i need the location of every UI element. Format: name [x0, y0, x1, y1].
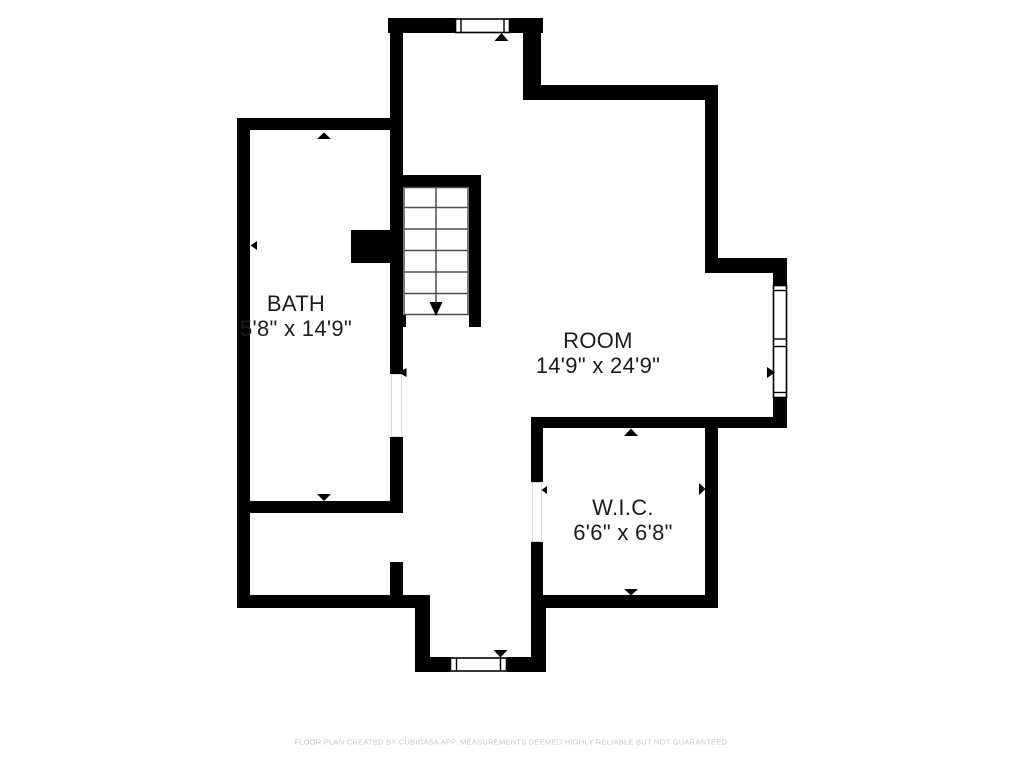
arrow-up-icon — [317, 133, 331, 140]
arrow-up-icon — [624, 429, 638, 437]
door-bath — [392, 375, 402, 437]
stairs — [404, 188, 468, 315]
wall-plumbing-stub — [351, 230, 403, 263]
door-openings — [392, 375, 542, 542]
room-dimensions: 14'9" x 24'9" — [536, 353, 661, 378]
door-wic — [533, 483, 542, 542]
floor-plan-page: BATH 5'8" x 14'9" ROOM 14'9" x 24'9" W.I… — [0, 0, 1024, 768]
wall-stairs-exit-stub — [396, 315, 406, 327]
arrow-down-icon — [317, 494, 331, 501]
walls — [237, 18, 787, 672]
wall-bath-east-lower — [390, 562, 403, 608]
room-dimensions: 6'6" x 6'8" — [573, 520, 673, 545]
disclaimer-text: FLOOR PLAN CREATED BY CUBICASA APP. MEAS… — [294, 738, 729, 747]
wall-bath-bottom — [250, 501, 403, 513]
wall-step-horizontal — [523, 85, 718, 100]
window-right — [774, 286, 787, 398]
wall-entry-bottom-left — [415, 657, 450, 672]
wall-entry-west — [415, 608, 430, 657]
room-label-bath: BATH 5'8" x 14'9" — [240, 291, 352, 341]
room-label-wic: W.I.C. 6'6" x 6'8" — [573, 495, 673, 545]
arrow-left-icon — [251, 241, 258, 250]
room-name: BATH — [240, 291, 352, 316]
arrow-down-icon — [624, 589, 638, 596]
wall-east-upper — [705, 85, 718, 273]
wall-wic-west-lower — [531, 542, 543, 608]
room-name: ROOM — [536, 328, 661, 353]
window-top — [456, 19, 510, 33]
arrow-down-icon — [494, 650, 508, 658]
wall-entry-bottom-right — [507, 657, 546, 672]
wall-bath-east-mid — [390, 437, 403, 513]
wall-west-outer — [237, 118, 250, 608]
wall-bath-top — [237, 118, 403, 130]
room-name: W.I.C. — [573, 495, 673, 520]
wall-wic-top — [531, 417, 787, 428]
arrow-up-icon — [495, 33, 509, 41]
floor-plan-drawing — [0, 0, 1024, 768]
wall-wic-east — [705, 417, 718, 608]
wall-bay-east-upper-cap — [773, 258, 787, 285]
wall-stairs-east — [469, 175, 481, 327]
arrow-left-icon — [542, 486, 548, 494]
room-label-room: ROOM 14'9" x 24'9" — [536, 328, 661, 378]
room-dimensions: 5'8" x 14'9" — [240, 316, 352, 341]
window-bottom — [451, 658, 507, 671]
wall-wic-west-upper — [531, 417, 543, 482]
wall-wic-bottom — [531, 595, 718, 608]
arrow-right-icon — [699, 483, 706, 495]
